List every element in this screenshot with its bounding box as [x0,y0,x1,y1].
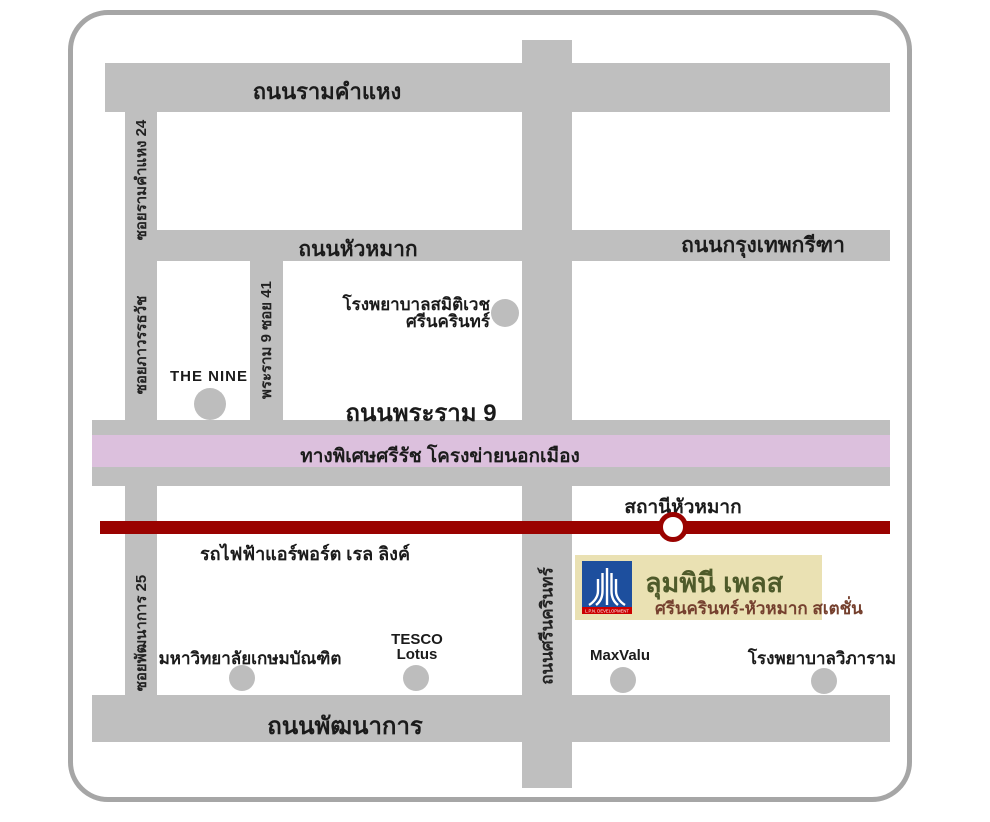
road-pattanakarn [92,695,890,742]
label-samitivej-line1: โรงพยาบาลสมิติเวช [330,296,490,313]
label-samitivej-hospital: โรงพยาบาลสมิติเวช ศรีนครินทร์ [330,296,490,330]
huamak-station-marker [658,512,688,542]
label-the-nine: THE NINE [149,368,269,385]
label-krungthep-kreetha-road: ถนนกรุงเทพกรีฑา [633,229,893,262]
vibharam-marker [811,668,837,694]
label-rama9-road: ถนนพระราม 9 [321,393,521,432]
label-tesco-line2: Lotus [357,647,477,662]
samitivej-marker [491,299,519,327]
lpn-logo-caption: L.P.N. DEVELOPMENT [585,608,629,613]
project-box: L.P.N. DEVELOPMENT ลุมพินี เพลส ศรีนคริน… [575,555,822,620]
label-ramkhamhaeng-road: ถนนรามคำแหง [187,74,467,109]
label-maxvalu: MaxValu [560,647,680,664]
tesco-lotus-marker [403,665,429,691]
label-tesco-line1: TESCO [357,632,477,647]
project-subtitle: ศรีนครินทร์-หัวหมาก สเตชั่น [655,595,863,622]
label-pattanakarn-road: ถนนพัฒนาการ [225,706,465,745]
label-tesco-lotus: TESCO Lotus [357,632,477,662]
label-expressway: ทางพิเศษศรีรัช โครงข่ายนอกเมือง [240,441,640,471]
lpn-logo-icon: L.P.N. DEVELOPMENT [582,561,632,614]
label-huamak-road: ถนนหัวหมาก [258,233,458,266]
airport-rail-link-line [100,521,890,534]
kasem-bundit-marker [229,665,255,691]
label-srinagarindra-road: ถนนศรีนครินทร์ [534,567,561,685]
label-soi-pattanakarn-25: ซอยพัฒนาการ 25 [129,575,153,692]
label-samitivej-line2: ศรีนครินทร์ [330,313,490,330]
maxvalu-marker [610,667,636,693]
map-canvas: ถนนรามคำแหง ถนนหัวหมาก ถนนกรุงเทพกรีฑา ถ… [0,0,990,822]
the-nine-marker [194,388,226,420]
label-airport-rail-link: รถไฟฟ้าแอร์พอร์ต เรล ลิงค์ [155,539,455,568]
label-soi-ramkhamhaeng-24: ซอยรามคำแหง 24 [129,120,153,241]
